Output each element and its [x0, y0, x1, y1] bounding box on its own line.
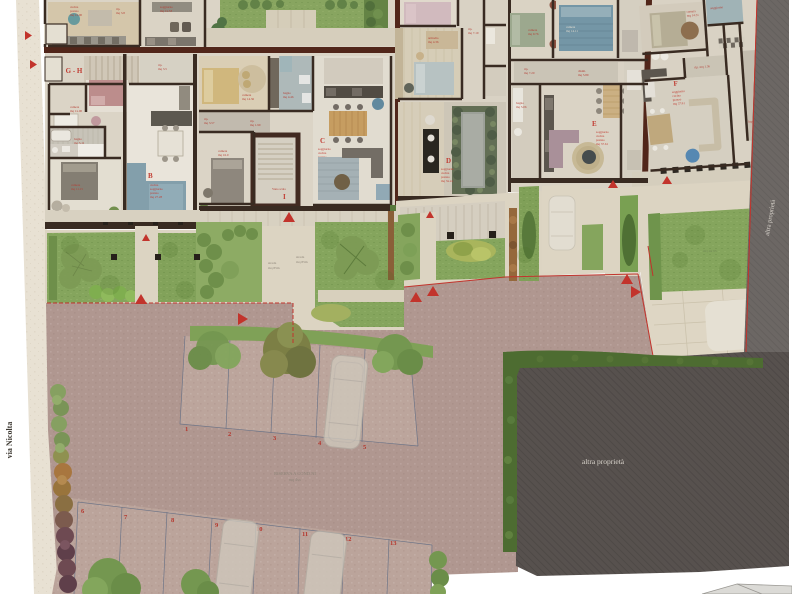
- svg-text:altra proprietà: altra proprietà: [582, 457, 625, 466]
- svg-text:via Nicolta: via Nicolta: [5, 422, 14, 459]
- svg-text:mq 4xx: mq 4xx: [289, 477, 301, 482]
- svg-text:RISERVA A COND.NI: RISERVA A COND.NI: [274, 471, 316, 476]
- svg-text:2: 2: [228, 431, 231, 438]
- svg-text:1: 1: [185, 426, 188, 433]
- svg-text:11: 11: [302, 531, 308, 538]
- svg-text:mq 85m: mq 85m: [268, 266, 280, 270]
- svg-text:mq 4x.05: mq 4x.05: [703, 249, 716, 253]
- svg-text:mq 85m: mq 85m: [296, 260, 308, 264]
- svg-text:strada: strada: [296, 255, 305, 259]
- svg-text:strada: strada: [268, 261, 277, 265]
- svg-text:13: 13: [390, 540, 397, 547]
